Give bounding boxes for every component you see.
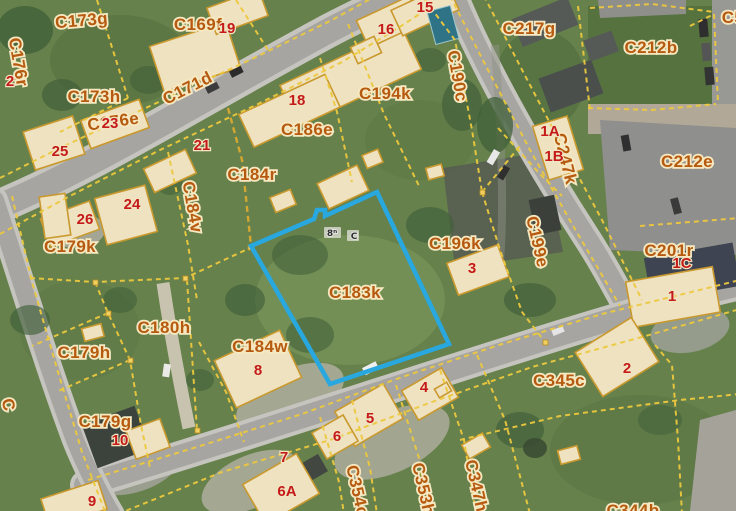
house-number-1A: 1A [540, 123, 559, 140]
house-number-19: 19 [219, 20, 236, 37]
house-number-1: 1 [668, 288, 676, 305]
parcel-label-C169f[interactable]: C169f [174, 15, 222, 34]
parcel-label-C217g[interactable]: C217g [502, 19, 555, 38]
house-number-4: 4 [420, 379, 429, 396]
house-number-26: 26 [77, 211, 94, 228]
house-number-23: 23 [102, 115, 119, 132]
ground-marker: 8ⁿ [327, 229, 337, 239]
parcel-label-C173h[interactable]: C173h [67, 87, 120, 106]
cadastral-map-viewport[interactable]: 8ⁿC C173gC169fC176rC173hC171dC176eC194kC… [0, 0, 736, 511]
house-number-15: 15 [417, 0, 434, 16]
house-number-5: 5 [366, 410, 374, 427]
parcel-label-C184w[interactable]: C184w [232, 337, 288, 356]
cadastral-map[interactable]: 8ⁿC C173gC169fC176rC173hC171dC176eC194kC… [0, 0, 736, 511]
house-number-9: 9 [88, 493, 96, 510]
house-number-24: 24 [124, 196, 141, 213]
parcel-label-C179g[interactable]: C179g [78, 412, 131, 431]
house-number-2: 2 [6, 73, 14, 90]
house-number-8: 8 [254, 362, 262, 379]
house-number-1C: 1C [672, 255, 691, 272]
parcel-label-fragment: C5 [722, 8, 736, 27]
parcel-label-C186e[interactable]: C186e [281, 120, 333, 139]
parcel-label-C179h[interactable]: C179h [57, 343, 110, 362]
house-number-2: 2 [623, 360, 631, 377]
house-number-21: 21 [194, 137, 211, 154]
parcel-label-C212b[interactable]: C212b [624, 38, 677, 57]
house-number-6: 6 [333, 428, 341, 445]
house-number-1B: 1B [544, 148, 563, 165]
parcel-label-C344b[interactable]: C344b [606, 501, 659, 511]
parcel-label-C183k[interactable]: C183k [329, 283, 381, 302]
house-number-3: 3 [468, 260, 476, 277]
house-number-7: 7 [280, 449, 288, 466]
parcel-label-C196k[interactable]: C196k [429, 234, 481, 253]
parcel-label-C212e[interactable]: C212e [661, 152, 713, 171]
parcel-label-C194k[interactable]: C194k [359, 84, 411, 103]
parcel-label-C179k[interactable]: C179k [44, 237, 96, 256]
ground-marker: C [351, 232, 358, 242]
house-number-10: 10 [112, 432, 129, 449]
house-number-16: 16 [378, 21, 395, 38]
house-number-25: 25 [52, 143, 69, 160]
parcel-label-C180h[interactable]: C180h [137, 318, 190, 337]
house-number-6A: 6A [277, 483, 296, 500]
house-number-18: 18 [289, 92, 306, 109]
parcel-label-C345c[interactable]: C345c [533, 371, 585, 390]
parcel-label-C184r[interactable]: C184r [227, 165, 276, 184]
